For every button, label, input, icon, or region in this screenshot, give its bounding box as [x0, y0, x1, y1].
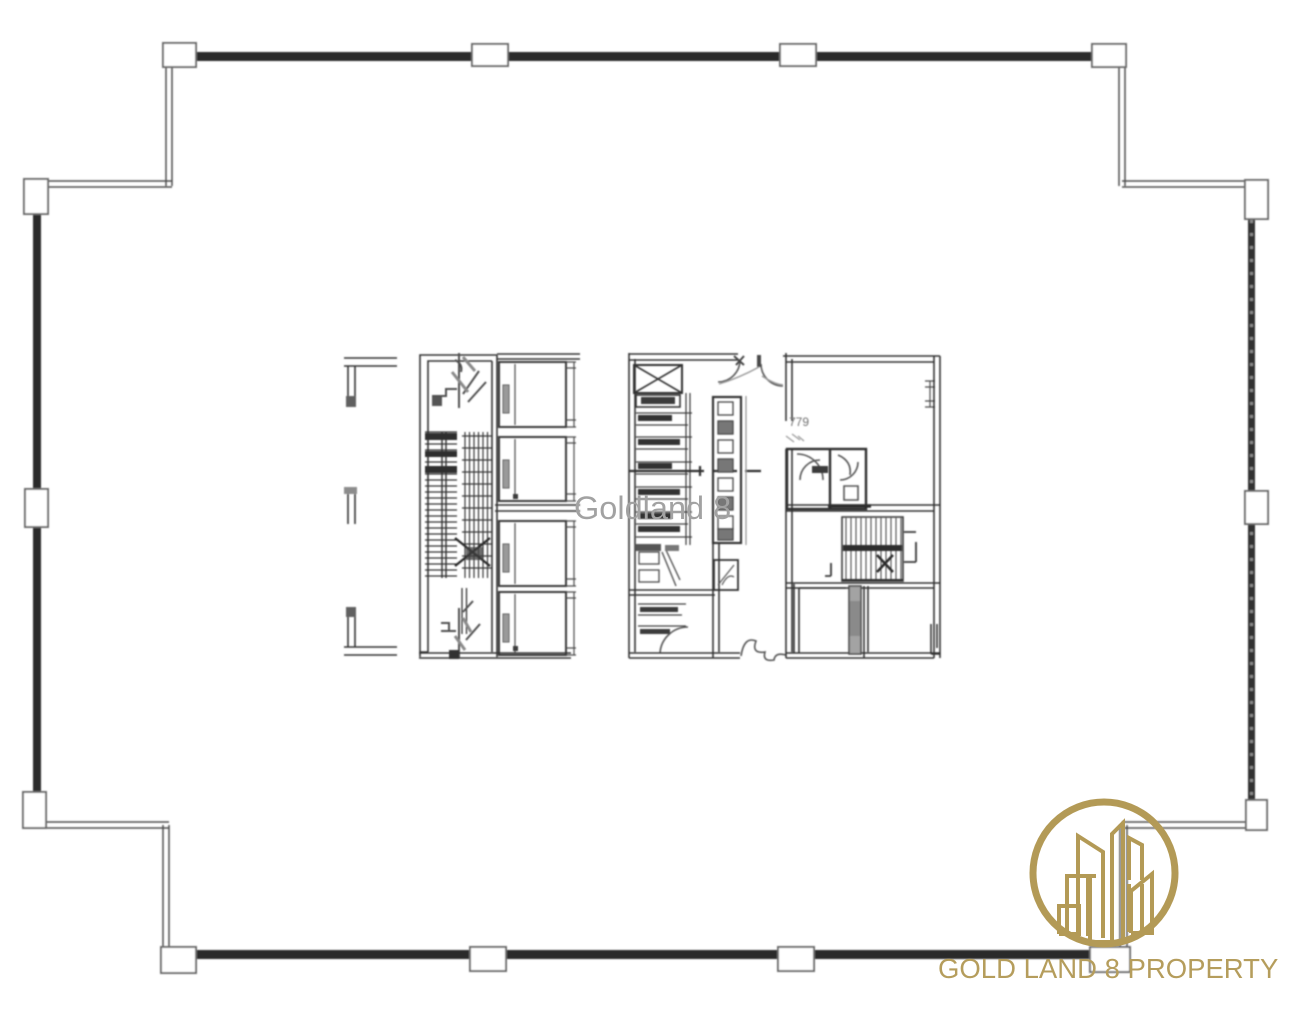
svg-text:GOLD LAND 8 PROPERTY: GOLD LAND 8 PROPERTY	[938, 953, 1278, 984]
svg-text:Goldland 8: Goldland 8	[574, 490, 731, 526]
svg-text:779: 779	[789, 415, 809, 429]
